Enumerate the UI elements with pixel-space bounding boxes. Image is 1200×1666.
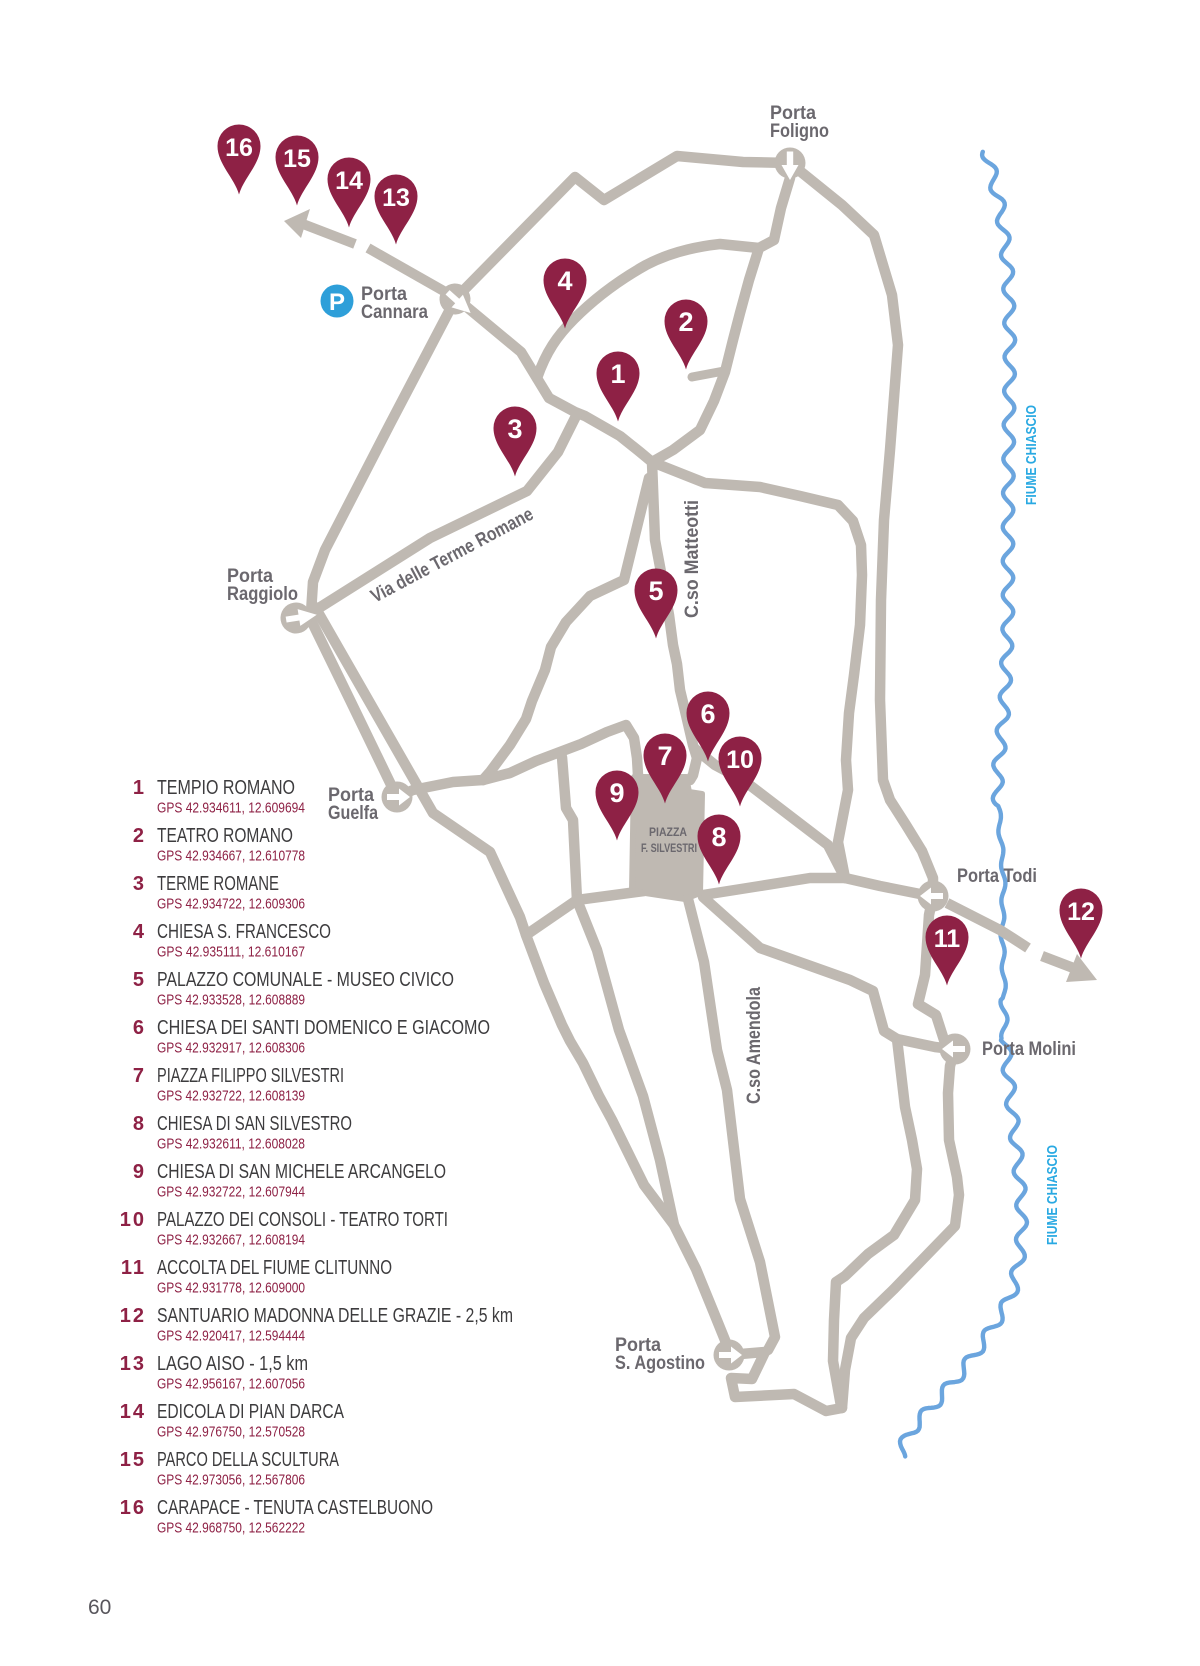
- svg-text:3: 3: [133, 873, 146, 895]
- svg-text:5: 5: [648, 576, 663, 606]
- svg-text:GPS 42.976750, 12.570528: GPS 42.976750, 12.570528: [157, 1424, 305, 1441]
- svg-text:2: 2: [678, 307, 693, 337]
- svg-text:5: 5: [133, 969, 146, 991]
- svg-text:FIUME CHIASCIO: FIUME CHIASCIO: [1044, 1145, 1061, 1245]
- svg-text:ACCOLTA DEL FIUME CLITUNNO: ACCOLTA DEL FIUME CLITUNNO: [157, 1257, 392, 1279]
- svg-text:Guelfa: Guelfa: [328, 803, 378, 824]
- svg-text:4: 4: [557, 266, 572, 296]
- svg-text:1: 1: [133, 777, 146, 799]
- svg-text:GPS 42.932667, 12.608194: GPS 42.932667, 12.608194: [157, 1232, 305, 1249]
- svg-text:EDICOLA DI PIAN DARCA: EDICOLA DI PIAN DARCA: [157, 1401, 345, 1423]
- svg-text:PALAZZO DEI CONSOLI - TEATRO T: PALAZZO DEI CONSOLI - TEATRO TORTI: [157, 1209, 448, 1231]
- svg-text:60: 60: [88, 1596, 111, 1619]
- svg-text:CHIESA DI SAN SILVESTRO: CHIESA DI SAN SILVESTRO: [157, 1113, 352, 1135]
- svg-text:14: 14: [120, 1401, 146, 1423]
- svg-text:C.so Matteotti: C.so Matteotti: [682, 500, 703, 618]
- svg-text:FIUME CHIASCIO: FIUME CHIASCIO: [1023, 405, 1040, 505]
- svg-text:11: 11: [934, 925, 961, 953]
- svg-text:PIAZZA FILIPPO SILVESTRI: PIAZZA FILIPPO SILVESTRI: [157, 1065, 344, 1087]
- svg-text:GPS 42.968750, 12.562222: GPS 42.968750, 12.562222: [157, 1520, 305, 1537]
- svg-text:14: 14: [335, 167, 363, 195]
- svg-text:PALAZZO COMUNALE - MUSEO CIVIC: PALAZZO COMUNALE - MUSEO CIVICO: [157, 969, 454, 991]
- svg-text:S. Agostino: S. Agostino: [615, 1353, 705, 1374]
- svg-text:GPS 42.932722, 12.607944: GPS 42.932722, 12.607944: [157, 1184, 305, 1201]
- svg-text:12: 12: [1067, 898, 1095, 926]
- svg-text:GPS 42.934667, 12.610778: GPS 42.934667, 12.610778: [157, 848, 305, 865]
- svg-text:GPS 42.932917, 12.608306: GPS 42.932917, 12.608306: [157, 1040, 305, 1057]
- svg-text:10: 10: [726, 746, 754, 774]
- svg-text:LAGO AISO - 1,5 km: LAGO AISO - 1,5 km: [157, 1353, 308, 1375]
- svg-text:3: 3: [507, 414, 522, 444]
- svg-text:GPS 42.932611, 12.608028: GPS 42.932611, 12.608028: [157, 1136, 305, 1153]
- svg-text:F. SILVESTRI: F. SILVESTRI: [641, 841, 697, 855]
- svg-text:1: 1: [610, 359, 625, 389]
- svg-text:PIAZZA: PIAZZA: [649, 825, 687, 839]
- svg-text:GPS 42.933528, 12.608889: GPS 42.933528, 12.608889: [157, 992, 305, 1009]
- svg-text:8: 8: [711, 822, 726, 852]
- svg-text:9: 9: [609, 778, 624, 808]
- svg-text:13: 13: [120, 1353, 146, 1375]
- svg-text:4: 4: [133, 921, 146, 943]
- svg-text:15: 15: [120, 1449, 146, 1471]
- svg-text:16: 16: [225, 134, 253, 162]
- svg-text:GPS 42.934722, 12.609306: GPS 42.934722, 12.609306: [157, 896, 305, 913]
- svg-text:CHIESA DEI SANTI DOMENICO E GI: CHIESA DEI SANTI DOMENICO E GIACOMO: [157, 1017, 490, 1039]
- svg-text:6: 6: [133, 1017, 146, 1039]
- svg-text:Foligno: Foligno: [770, 121, 829, 142]
- svg-text:7: 7: [133, 1065, 146, 1087]
- svg-text:7: 7: [657, 741, 672, 771]
- svg-text:16: 16: [120, 1497, 146, 1519]
- svg-text:Porta Todi: Porta Todi: [957, 866, 1037, 887]
- svg-text:12: 12: [120, 1305, 146, 1327]
- svg-text:2: 2: [133, 825, 146, 847]
- svg-text:9: 9: [133, 1161, 146, 1183]
- svg-text:GPS 42.956167, 12.607056: GPS 42.956167, 12.607056: [157, 1376, 305, 1393]
- svg-text:Cannara: Cannara: [361, 302, 428, 323]
- svg-text:GPS 42.934611, 12.609694: GPS 42.934611, 12.609694: [157, 800, 305, 817]
- svg-text:GPS 42.932722, 12.608139: GPS 42.932722, 12.608139: [157, 1088, 305, 1105]
- svg-text:6: 6: [700, 699, 715, 729]
- svg-text:GPS 42.920417, 12.594444: GPS 42.920417, 12.594444: [157, 1328, 305, 1345]
- svg-text:13: 13: [382, 184, 410, 212]
- svg-text:TERME ROMANE: TERME ROMANE: [157, 873, 279, 895]
- svg-text:TEATRO ROMANO: TEATRO ROMANO: [157, 825, 293, 847]
- svg-text:10: 10: [120, 1209, 146, 1231]
- svg-text:GPS 42.935111, 12.610167: GPS 42.935111, 12.610167: [157, 944, 305, 961]
- svg-text:Raggiolo: Raggiolo: [227, 584, 298, 605]
- svg-text:GPS 42.931778, 12.609000: GPS 42.931778, 12.609000: [157, 1280, 305, 1297]
- svg-text:15: 15: [283, 145, 311, 173]
- svg-text:CHIESA DI SAN MICHELE ARCANGEL: CHIESA DI SAN MICHELE ARCANGELO: [157, 1161, 446, 1183]
- svg-text:CHIESA S. FRANCESCO: CHIESA S. FRANCESCO: [157, 921, 331, 943]
- svg-text:C.so Amendola: C.so Amendola: [744, 987, 765, 1104]
- svg-text:P: P: [329, 289, 345, 316]
- svg-text:PARCO DELLA SCULTURA: PARCO DELLA SCULTURA: [157, 1449, 339, 1471]
- svg-text:SANTUARIO MADONNA DELLE GRAZIE: SANTUARIO MADONNA DELLE GRAZIE - 2,5 km: [157, 1305, 513, 1327]
- svg-text:11: 11: [121, 1257, 146, 1279]
- svg-text:CARAPACE - TENUTA CASTELBUONO: CARAPACE - TENUTA CASTELBUONO: [157, 1497, 433, 1519]
- svg-text:TEMPIO ROMANO: TEMPIO ROMANO: [157, 777, 295, 799]
- svg-text:Porta Molini: Porta Molini: [982, 1039, 1076, 1060]
- svg-text:GPS 42.973056, 12.567806: GPS 42.973056, 12.567806: [157, 1472, 305, 1489]
- svg-text:8: 8: [133, 1113, 146, 1135]
